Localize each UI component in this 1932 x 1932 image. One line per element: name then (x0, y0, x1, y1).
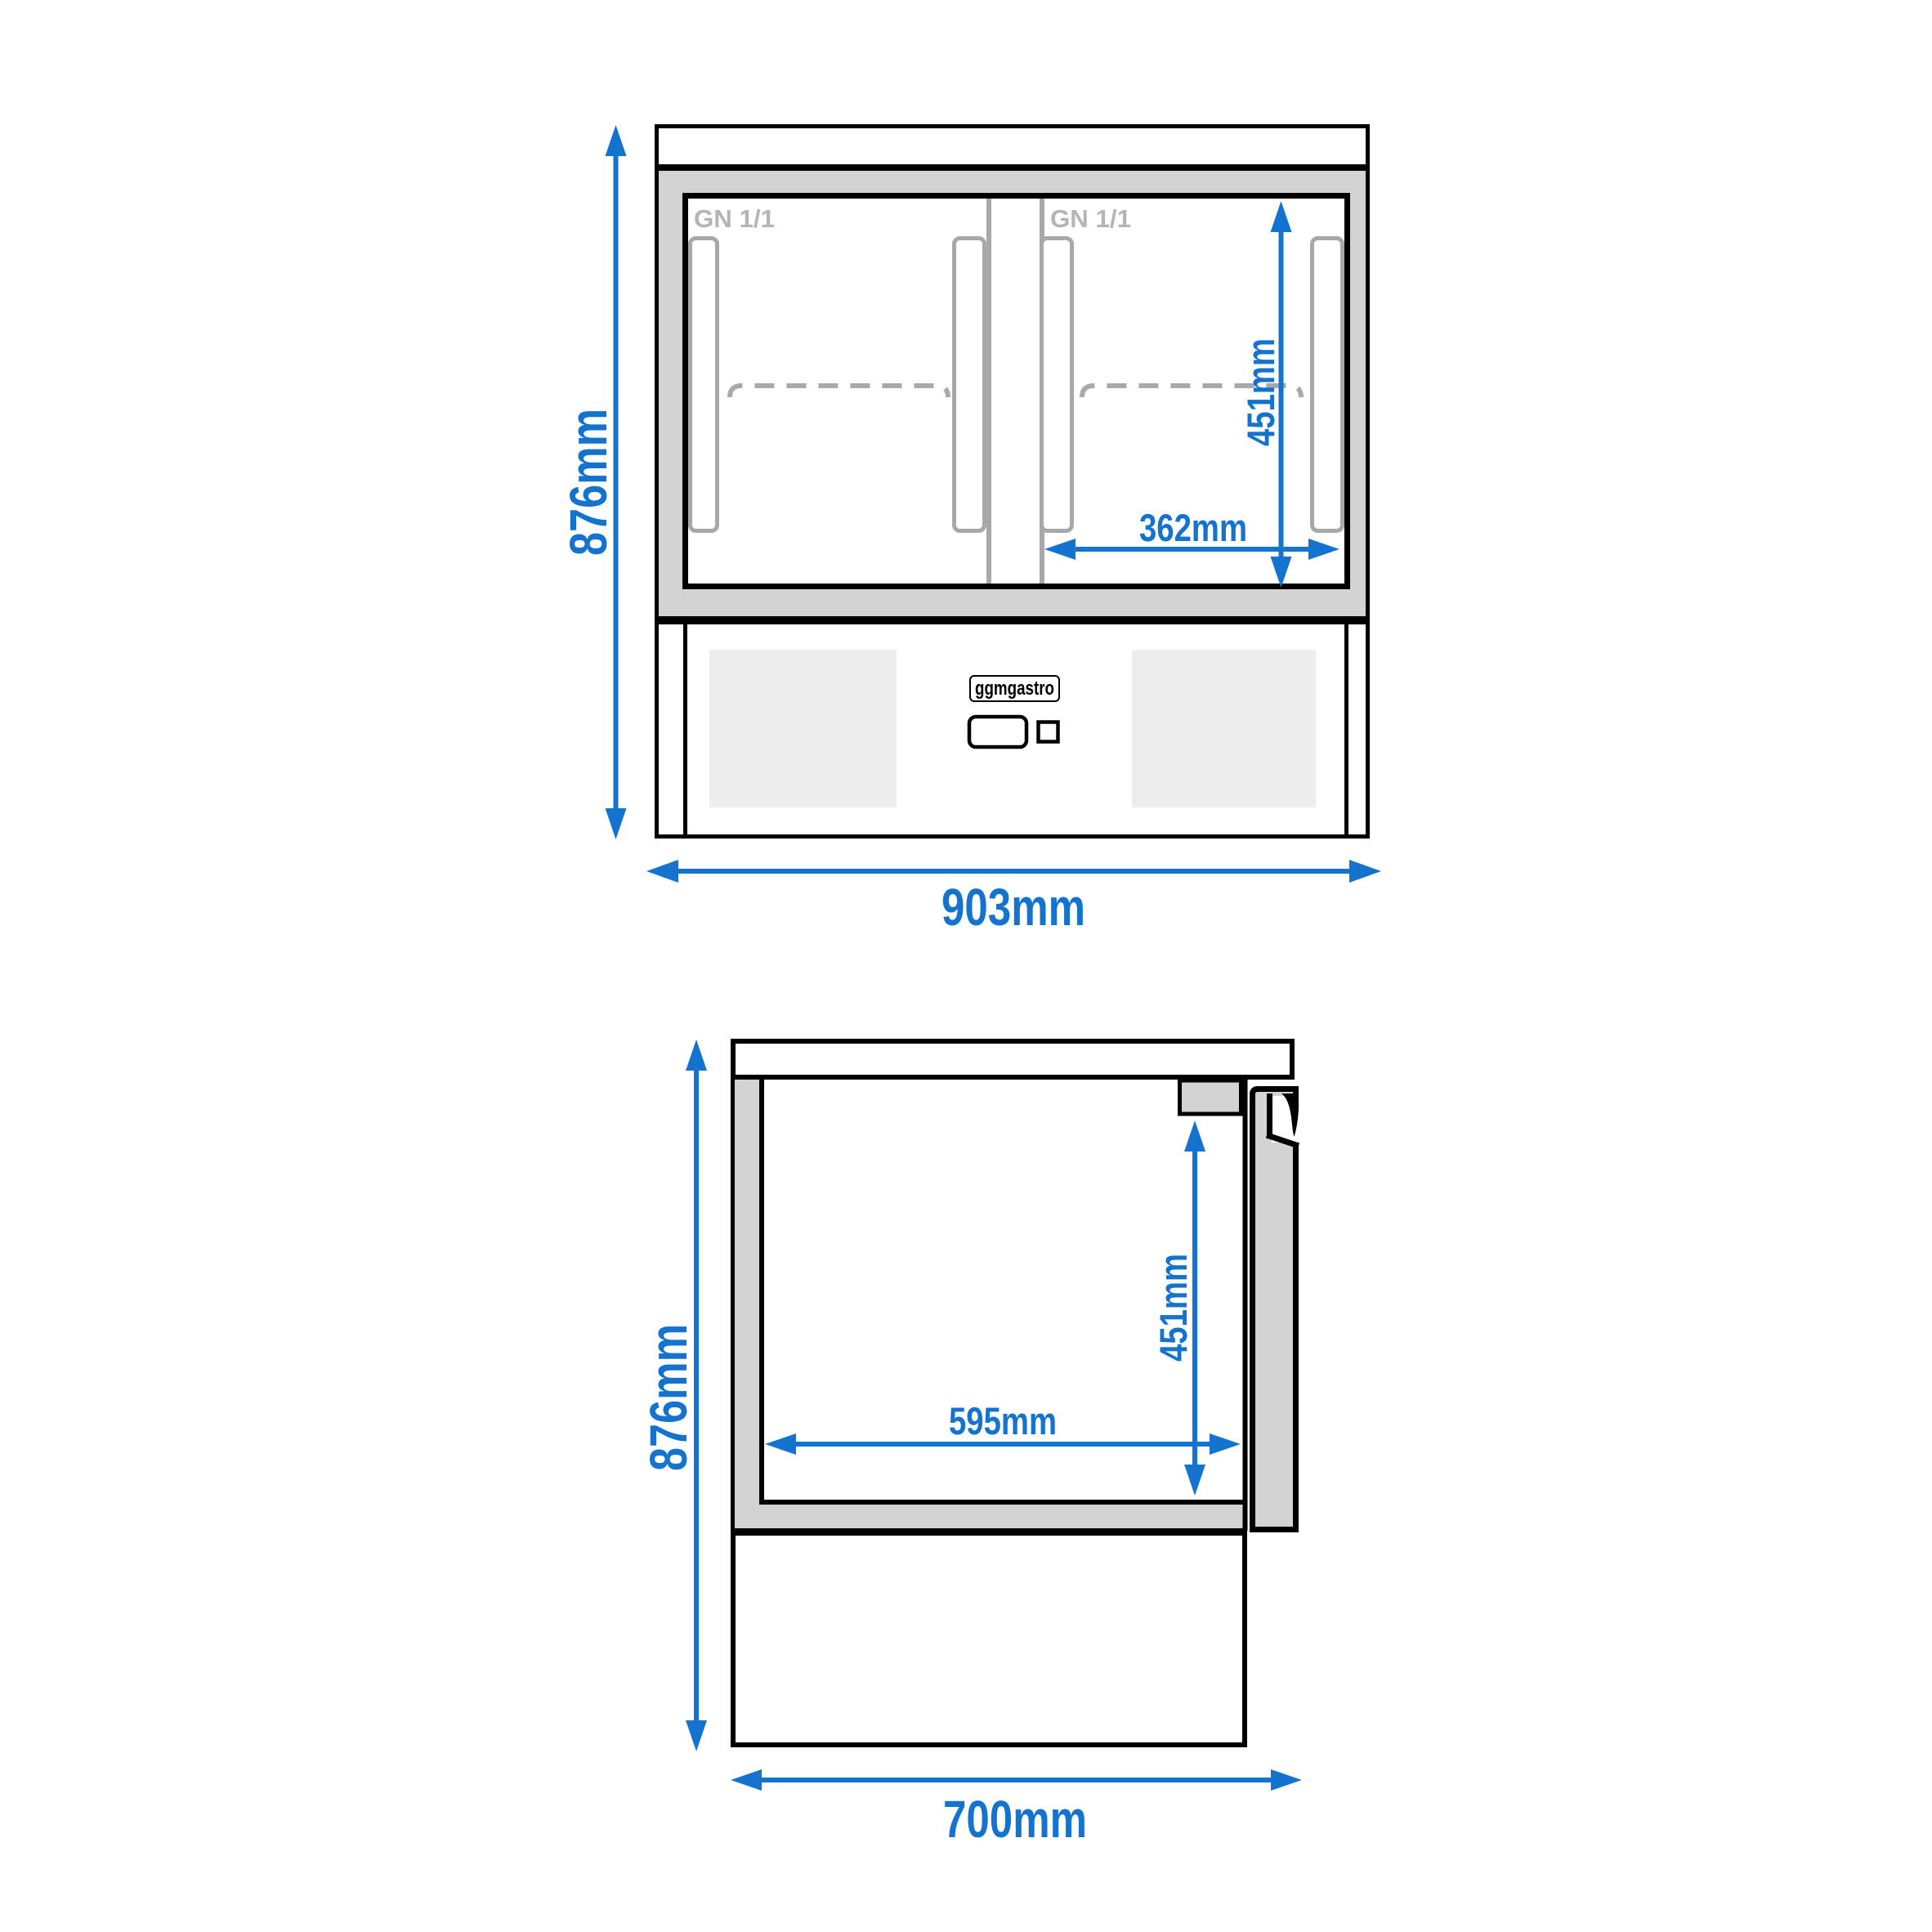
svg-text:GN 1/1: GN 1/1 (694, 204, 775, 233)
svg-text:903mm: 903mm (941, 878, 1085, 937)
svg-text:876mm: 876mm (559, 409, 618, 556)
svg-text:451mm: 451mm (1239, 338, 1282, 446)
svg-text:700mm: 700mm (943, 1790, 1087, 1849)
svg-text:876mm: 876mm (639, 1324, 698, 1471)
svg-text:ggmgastro: ggmgastro (975, 678, 1054, 700)
svg-text:GN 1/1: GN 1/1 (1050, 204, 1131, 233)
svg-text:362mm: 362mm (1139, 506, 1247, 549)
svg-text:451mm: 451mm (1152, 1254, 1195, 1362)
svg-text:595mm: 595mm (949, 1399, 1057, 1442)
